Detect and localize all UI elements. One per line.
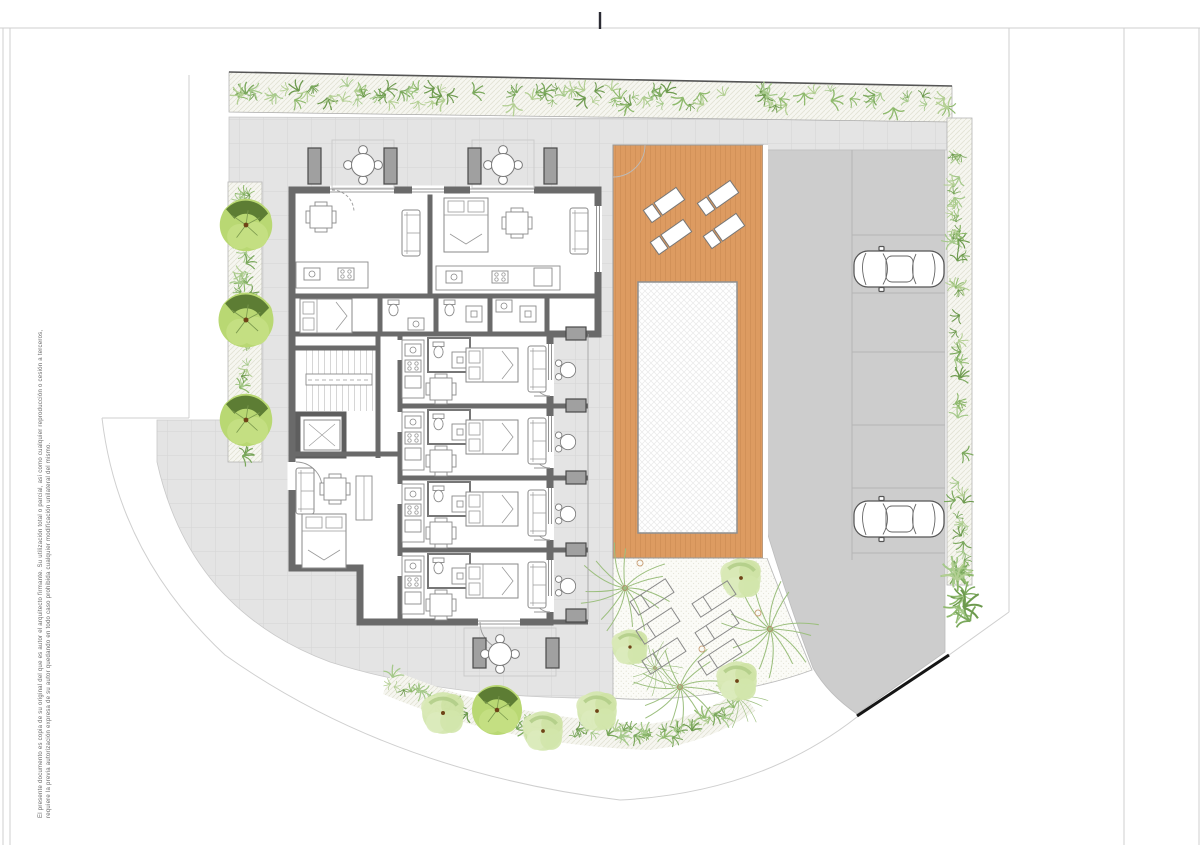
kitchen-sink: [405, 560, 421, 572]
car-top-view: [854, 247, 944, 292]
sofa: [528, 346, 546, 392]
tree-icon: [720, 558, 761, 598]
planter-box: [544, 148, 557, 184]
dining-table: [426, 446, 456, 476]
kitchen-sink: [405, 488, 421, 500]
tree-icon: [716, 661, 757, 701]
toilet: [433, 414, 444, 430]
tree-icon: [219, 293, 274, 348]
planter-box: [566, 609, 586, 622]
planter-box: [308, 148, 321, 184]
tree-icon: [472, 685, 522, 735]
deck-edge-strip: [763, 145, 768, 558]
double-bed: [466, 492, 518, 526]
dining-table: [426, 518, 456, 548]
sofa: [528, 418, 546, 464]
stair-handrail: [306, 374, 372, 385]
planter-box: [566, 471, 586, 484]
toilet: [433, 486, 444, 502]
fridge: [405, 448, 421, 460]
kitchen-sink: [405, 416, 421, 428]
fridge: [405, 520, 421, 532]
drawing-sheet: El presente documento es copia de su ori…: [0, 0, 1200, 848]
car-top-view: [854, 497, 944, 542]
fridge: [405, 592, 421, 604]
tree-icon: [522, 711, 563, 751]
stove-top: [405, 432, 421, 444]
double-bed: [466, 420, 518, 454]
copyright-disclaimer-line2: requiere la previa autorización expresa …: [46, 442, 52, 818]
tree-icon: [612, 629, 648, 664]
double-bed: [466, 564, 518, 598]
fridge: [405, 376, 421, 388]
swimming-pool: [638, 282, 737, 533]
toilet: [433, 342, 444, 358]
dining-table: [426, 374, 456, 404]
kitchen-sink: [405, 344, 421, 356]
copyright-disclaimer-line1: El presente documento es copia de su ori…: [38, 330, 44, 818]
toilet: [433, 558, 444, 574]
tree-icon: [220, 394, 273, 447]
site-plan-canvas: El presente documento es copia de su ori…: [0, 0, 1200, 848]
stove-top: [405, 360, 421, 372]
sofa: [528, 562, 546, 608]
dining-table: [426, 590, 456, 620]
stove-top: [405, 504, 421, 516]
double-bed: [466, 348, 518, 382]
sofa: [528, 490, 546, 536]
tree-icon: [421, 692, 464, 734]
planter-box: [546, 638, 559, 668]
tree-icon: [220, 199, 273, 252]
planter-box: [566, 327, 586, 340]
planter-box: [468, 148, 481, 184]
stove-top: [405, 576, 421, 588]
planter-box: [566, 543, 586, 556]
planter-box: [566, 399, 586, 412]
tree-icon: [576, 691, 617, 731]
planter-box: [384, 148, 397, 184]
